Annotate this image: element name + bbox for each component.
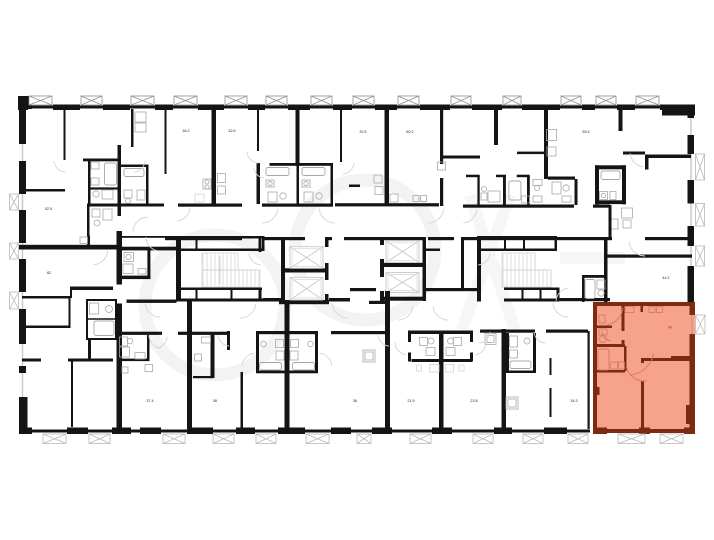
svg-text:37.4: 37.4 (146, 399, 153, 403)
svg-text:23.8: 23.8 (470, 399, 477, 403)
svg-text:36: 36 (353, 399, 357, 403)
svg-text:32.6: 32.6 (228, 129, 235, 133)
svg-text:36.2: 36.2 (182, 129, 189, 133)
svg-text:82: 82 (47, 271, 51, 275)
svg-text:34.3: 34.3 (570, 399, 577, 403)
svg-text:55.4: 55.4 (582, 130, 589, 134)
svg-text:36: 36 (213, 399, 217, 403)
svg-text:52.5: 52.5 (45, 207, 52, 211)
svg-text:32.5: 32.5 (359, 130, 366, 134)
svg-text:60.2: 60.2 (406, 130, 413, 134)
svg-text:49: 49 (668, 326, 672, 330)
svg-text:21.9: 21.9 (407, 399, 414, 403)
svg-text:44.2: 44.2 (662, 276, 669, 280)
